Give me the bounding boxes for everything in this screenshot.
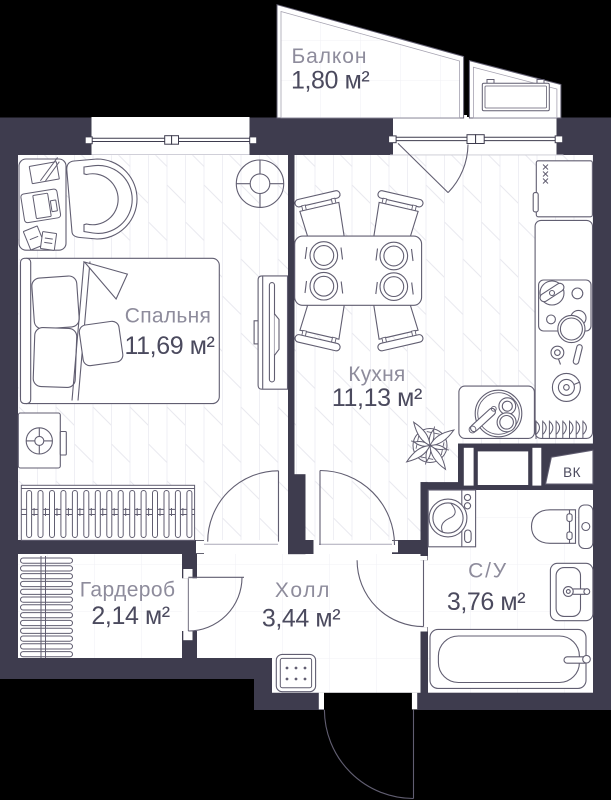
svg-text:Холл: Холл (275, 579, 331, 602)
svg-text:1,80 м²: 1,80 м² (291, 67, 369, 95)
svg-text:ВК: ВК (563, 465, 581, 480)
svg-text:11,13 м²: 11,13 м² (332, 384, 422, 412)
svg-text:3,44 м²: 3,44 м² (262, 605, 340, 633)
svg-text:Балкон: Балкон (292, 45, 368, 68)
svg-text:С/У: С/У (468, 560, 508, 583)
svg-text:11,69 м²: 11,69 м² (125, 332, 215, 360)
svg-text:2,14 м²: 2,14 м² (91, 602, 169, 630)
svg-text:Кухня: Кухня (348, 363, 405, 386)
svg-text:Гардероб: Гардероб (80, 578, 176, 601)
svg-text:Спальня: Спальня (125, 305, 211, 328)
svg-text:3,76 м²: 3,76 м² (447, 588, 525, 616)
